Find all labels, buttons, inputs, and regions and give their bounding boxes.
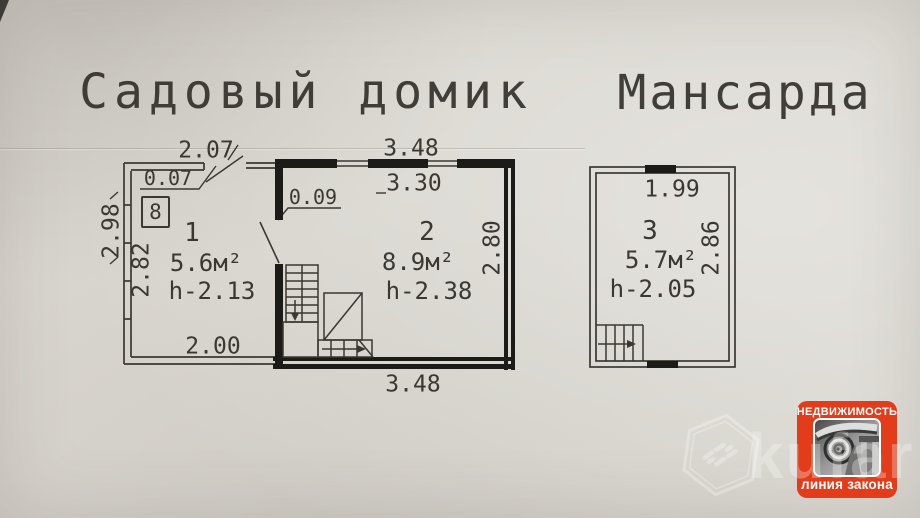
dim-attic-top-width: 1.99 — [644, 179, 699, 202]
room3-number: 3 — [642, 218, 658, 244]
page-title-attic: Мансарда — [617, 69, 872, 117]
agency-name-top: НЕДВИЖИМОСТЬ — [797, 406, 897, 418]
room1-number: 1 — [184, 220, 200, 246]
stove-symbol: 8 — [141, 196, 170, 228]
dim-room2-inner-width: 3.30 — [386, 173, 441, 196]
dim-wall-thickness-thick: 0.09 — [289, 187, 337, 207]
dim-room1-bottom-width: 2.00 — [185, 336, 240, 359]
room3-area: 5.7м² — [625, 248, 697, 272]
room3-ceiling-height: h-2.05 — [610, 277, 697, 301]
door-leaf — [260, 222, 279, 263]
staircase-attic — [596, 325, 643, 361]
dim-left-outer-height: 2.98 — [101, 203, 124, 258]
staircase-attic-arrow — [627, 340, 636, 348]
dim-wall-thickness-thin: 0.07 — [144, 168, 192, 188]
dim-room2-bottom-width: 3.48 — [385, 374, 440, 397]
page-title-floor1: Садовый домик — [79, 68, 533, 116]
dim-attic-right-height: 2.86 — [701, 220, 724, 275]
scanned-floorplan-page: Садовый домик Мансарда 2.07 0.07 0.09 3.… — [0, 0, 920, 518]
kufar-watermark-text: kufar — [748, 424, 915, 488]
dim-left-inner-height: 2.82 — [131, 242, 154, 297]
room2-area: 8.9м² — [382, 250, 454, 274]
dim-room2-top-width: 3.48 — [383, 138, 438, 161]
stove-symbol-label: 8 — [149, 200, 162, 224]
room2-number: 2 — [419, 219, 435, 245]
room1-area: 5.6м² — [170, 251, 242, 275]
dim-room2-right-height: 2.80 — [482, 220, 505, 275]
room2-ceiling-height: h-2.38 — [386, 279, 473, 303]
dim-room1-top-width: 2.07 — [178, 140, 233, 163]
staircase-floor1 — [283, 265, 373, 357]
room1-ceiling-height: h-2.13 — [169, 279, 256, 303]
